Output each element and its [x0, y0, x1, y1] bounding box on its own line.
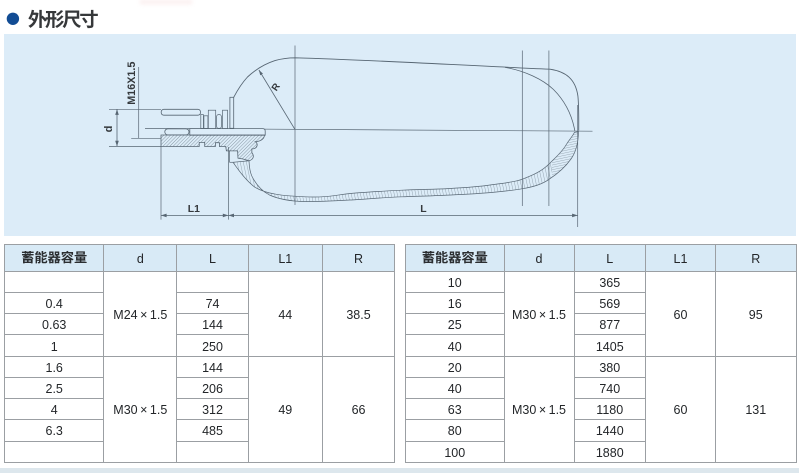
svg-text:L1: L1 [188, 204, 200, 215]
svg-text:d: d [103, 126, 115, 133]
svg-text:L: L [420, 204, 427, 215]
svg-text:M16X1.5: M16X1.5 [126, 62, 138, 105]
